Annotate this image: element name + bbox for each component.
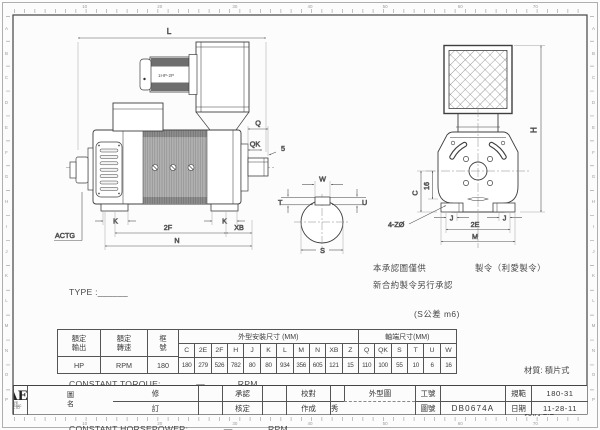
frame-column: 框 號 180 bbox=[148, 330, 179, 373]
dim-U: U bbox=[362, 198, 367, 207]
ruler-letter: D bbox=[592, 100, 595, 105]
ruler-number: 50 bbox=[383, 4, 388, 9]
ruler-letter: O bbox=[592, 372, 596, 377]
ruler-number: 60 bbox=[458, 4, 463, 9]
ruler-letter: I bbox=[593, 224, 594, 229]
verify-label: 核定 bbox=[222, 401, 262, 416]
blower-label: 1HP-2P bbox=[158, 73, 174, 78]
dimension-value-cell: 121 bbox=[326, 358, 342, 373]
dimension-letter-cell: T bbox=[408, 344, 424, 357]
proof-field bbox=[330, 386, 344, 401]
title-block: 修 LAE LI AYE ELECTRIC CO.,LTD 利愛電氣 承認 校對… bbox=[13, 385, 587, 414]
outline-dims-header: 外型安裝尺寸 (MM) bbox=[179, 330, 359, 343]
drawing-name-field-bottom bbox=[344, 401, 415, 416]
dimension-value-cell: 110 bbox=[359, 358, 375, 373]
dimension-letter-cell: QK bbox=[375, 344, 391, 357]
rated-speed-column: 額定 轉速 RPM bbox=[101, 330, 148, 373]
approval-note-right: 製令（利愛製令） bbox=[475, 262, 546, 274]
dimension-value-cell: 55 bbox=[392, 358, 408, 373]
ruler-number: 60 bbox=[458, 421, 463, 426]
dimension-letter-cell: J bbox=[244, 344, 260, 357]
dim-K-left: K bbox=[113, 217, 118, 226]
dimension-value-cell: 100 bbox=[375, 358, 391, 373]
drawing-sheet: L Q QK 5 K K 2F bbox=[0, 0, 600, 430]
dimension-table: 額定 輸出 HP 額定 轉速 RPM 框 號 180 外型安裝尺寸 (MM) 軸… bbox=[57, 329, 457, 374]
spec-horsepower-line: CONSTANT HORSEPOWER: ______ — ______ RPM bbox=[69, 422, 288, 430]
spec-type-line: TYPE :______ bbox=[69, 285, 288, 300]
approval-note-left: 本承認圖僅供 bbox=[373, 262, 426, 274]
dimension-value-cell: 934 bbox=[277, 358, 293, 373]
dimension-value-cell: 356 bbox=[294, 358, 310, 373]
approve-field bbox=[262, 386, 286, 401]
dim-H: H bbox=[530, 127, 539, 133]
ruler-letter: O bbox=[5, 372, 9, 377]
dim-W: W bbox=[319, 175, 326, 184]
ruler-letter: G bbox=[592, 174, 596, 179]
ruler-letter: E bbox=[5, 125, 8, 130]
date-value: 11-28-11 bbox=[531, 401, 588, 416]
ruler-letter: J bbox=[5, 249, 7, 254]
dimension-value-cell: 279 bbox=[195, 358, 211, 373]
hole-note: 4-ZØ bbox=[388, 220, 405, 229]
ruler-number: 70 bbox=[533, 4, 538, 9]
ruler-letter: K bbox=[5, 273, 8, 278]
shaft-dims-header: 軸端尺寸(MM) bbox=[359, 330, 456, 343]
ruler-letter: M bbox=[592, 323, 596, 328]
dim-L: L bbox=[167, 27, 172, 36]
spec-label: 規範 bbox=[505, 386, 531, 401]
actg-label: ACTG bbox=[55, 231, 75, 240]
ruler-letter: M bbox=[5, 323, 9, 328]
drawing-number-value: DB0674A bbox=[440, 401, 505, 416]
dim-XB: XB bbox=[234, 223, 244, 232]
ruler-number: 10 bbox=[82, 4, 87, 9]
maker-name: 薛秀香 bbox=[330, 401, 344, 416]
ruler-letter: L bbox=[592, 298, 595, 303]
dimension-letter-cell: K bbox=[261, 344, 277, 357]
work-number-label: 工號 bbox=[415, 386, 440, 401]
dimension-value-cell: 10 bbox=[408, 358, 424, 373]
dimension-letter-cell: S bbox=[392, 344, 408, 357]
ruler-letter: A bbox=[5, 26, 8, 31]
dimension-letter-cell: L bbox=[277, 344, 293, 357]
dimension-letter-cell: C bbox=[179, 344, 195, 357]
ruler-right-letters: ABCDEFGHIJKLMNOP bbox=[590, 16, 597, 412]
ruler-number: 50 bbox=[383, 421, 388, 426]
dimension-value-cell: 180 bbox=[179, 358, 195, 373]
frame-value: 180 bbox=[148, 357, 178, 373]
proof-label: 校對 bbox=[286, 386, 330, 401]
dim-16: 16 bbox=[422, 182, 431, 190]
ruler-letter: A bbox=[592, 26, 595, 31]
rated-speed-header: 額定 轉速 bbox=[101, 330, 147, 357]
ruler-letter: J bbox=[592, 249, 594, 254]
dim-J-right: J bbox=[503, 214, 507, 223]
ruler-letter: K bbox=[592, 273, 595, 278]
material-line: 材質: 積片式 bbox=[524, 364, 570, 378]
material-note: 材質: 積片式 比例 1:1 bbox=[524, 336, 570, 430]
dimension-letter-cell: M bbox=[294, 344, 310, 357]
ruler-letter: N bbox=[592, 348, 595, 353]
spec-value: 180-31 bbox=[531, 386, 588, 401]
ruler-letter: H bbox=[5, 199, 8, 204]
ruler-letter: G bbox=[5, 174, 9, 179]
dimension-letter-cell: Z bbox=[343, 344, 359, 357]
ruler-letter: B bbox=[592, 51, 595, 56]
frame-header: 框 號 bbox=[148, 330, 178, 357]
dimension-value-cell: 782 bbox=[228, 358, 244, 373]
verify-field bbox=[262, 401, 286, 416]
dimension-value-cell: 16 bbox=[441, 358, 456, 373]
dim-end-clearance: 5 bbox=[281, 144, 285, 153]
dim-2F: 2F bbox=[164, 223, 173, 232]
dim-M: M bbox=[472, 232, 478, 241]
company-logo: LAE LI AYE ELECTRIC CO.,LTD 利愛電氣 bbox=[13, 386, 27, 415]
dimension-letter-cell: N bbox=[310, 344, 326, 357]
rated-output-column: 額定 輸出 HP bbox=[58, 330, 101, 373]
dim-S: S bbox=[320, 246, 325, 255]
ruler-letter: F bbox=[5, 150, 8, 155]
ruler-letter: I bbox=[6, 224, 7, 229]
dimension-letter-cell: XB bbox=[326, 344, 342, 357]
dimension-letter-cell: 2E bbox=[195, 344, 211, 357]
tolerance-note: (S公差 m6) bbox=[414, 308, 460, 320]
rated-output-value: HP bbox=[58, 357, 100, 373]
dim-Q: Q bbox=[255, 119, 261, 128]
ruler-number: 40 bbox=[307, 421, 312, 426]
dimension-letter-cell: 2F bbox=[212, 344, 228, 357]
revision-label-top: 修 bbox=[113, 386, 198, 401]
dimension-letter-cell: Q bbox=[359, 344, 375, 357]
approval-note-line2: 新合約製令另行承認 bbox=[373, 279, 453, 291]
dim-T: T bbox=[278, 198, 283, 207]
dimension-value-cell: 526 bbox=[212, 358, 228, 373]
make-label: 作成 bbox=[286, 401, 330, 416]
dim-C: C bbox=[411, 190, 420, 195]
dimension-group-headers: 外型安裝尺寸 (MM) 軸端尺寸(MM) bbox=[179, 330, 456, 344]
ruler-letter: N bbox=[5, 348, 8, 353]
work-number-value bbox=[440, 386, 505, 401]
dim-J-left: J bbox=[450, 214, 454, 223]
rated-speed-value: RPM bbox=[101, 357, 147, 373]
dimension-letter-row: C2E2FHJKLMNXBZQQKSTUW bbox=[179, 344, 456, 358]
ruler-number: 40 bbox=[307, 4, 312, 9]
dimension-value-cell: 605 bbox=[310, 358, 326, 373]
ruler-letter: P bbox=[592, 397, 595, 402]
ruler-letter: B bbox=[5, 51, 8, 56]
ruler-letter: P bbox=[5, 397, 8, 402]
dimension-letter-cell: U bbox=[424, 344, 440, 357]
ruler-letter: E bbox=[592, 125, 595, 130]
date-label: 日期 bbox=[505, 401, 531, 416]
dimension-value-cell: 80 bbox=[244, 358, 260, 373]
ruler-letter: H bbox=[592, 199, 595, 204]
approve-label: 承認 bbox=[222, 386, 262, 401]
dimension-value-cell: 15 bbox=[343, 358, 359, 373]
ruler-letter: F bbox=[592, 150, 595, 155]
drawing-name-label: 圖 名 bbox=[27, 386, 113, 415]
dimension-value-cell: 6 bbox=[424, 358, 440, 373]
ruler-letter: C bbox=[5, 75, 8, 80]
dim-N: N bbox=[174, 236, 179, 245]
rated-output-header: 額定 輸出 bbox=[58, 330, 100, 357]
dim-K-right: K bbox=[222, 217, 227, 226]
ruler-left-letters: ABCDEFGHIJKLMNOP bbox=[3, 16, 10, 412]
ruler-letter: D bbox=[5, 100, 8, 105]
dimension-columns: 外型安裝尺寸 (MM) 軸端尺寸(MM) C2E2FHJKLMNXBZQQKST… bbox=[179, 330, 456, 373]
front-view bbox=[66, 42, 276, 211]
dimension-value-row: 1802795267828080934356605121151101005510… bbox=[179, 358, 456, 373]
dim-QK: QK bbox=[250, 140, 261, 149]
dimension-letter-cell: H bbox=[228, 344, 244, 357]
revision-field-top bbox=[198, 386, 222, 401]
ruler-number: 30 bbox=[232, 4, 237, 9]
revision-field-bottom bbox=[198, 401, 222, 416]
revision-label-bottom: 訂 bbox=[113, 401, 198, 416]
ruler-number: 20 bbox=[157, 4, 162, 9]
dimension-value-cell: 80 bbox=[261, 358, 277, 373]
drawing-number-label: 圖號 bbox=[415, 401, 440, 416]
dimension-letter-cell: W bbox=[441, 344, 456, 357]
shaft-detail bbox=[281, 194, 366, 250]
ruler-letter: L bbox=[5, 298, 8, 303]
ruler-top-numbers: 10203040506070 bbox=[47, 4, 573, 9]
dim-2E: 2E bbox=[471, 220, 480, 229]
drawing-name-value: 外型圖 bbox=[344, 386, 415, 401]
ruler-letter: C bbox=[592, 75, 595, 80]
